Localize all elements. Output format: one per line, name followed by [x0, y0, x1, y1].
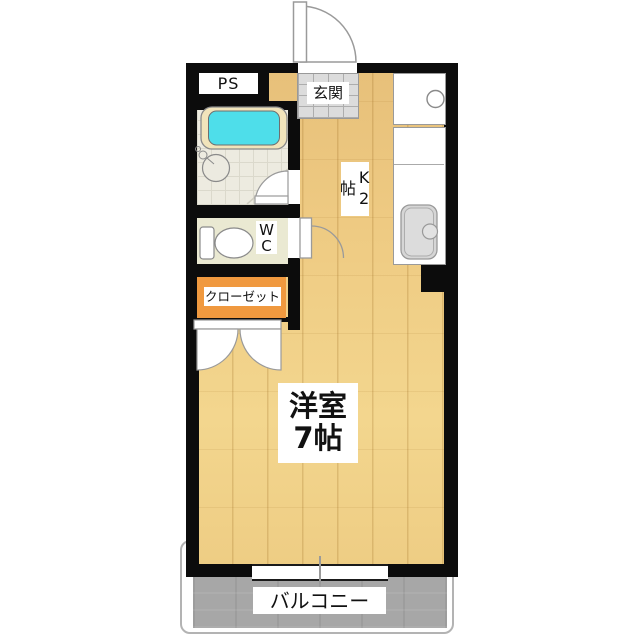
entrance-door-swing — [294, 2, 357, 62]
western-room-label-line1: 洋室 — [289, 391, 347, 423]
closet-label: クローゼット — [204, 287, 281, 306]
wc-door-leaf — [300, 218, 312, 258]
kitchen-label: K2帖 — [341, 162, 369, 216]
sink-drain-icon — [423, 224, 438, 239]
wc-label: WC — [256, 221, 277, 254]
entrance-door-leaf — [294, 2, 307, 62]
western-room-label-line2: 7帖 — [289, 423, 347, 455]
western-room-label: 洋室 7帖 — [278, 383, 358, 463]
wc-door-swing — [300, 218, 344, 258]
bathroom-door-leaf — [255, 196, 288, 204]
kitchen-sink — [401, 205, 438, 259]
entrance-label: 玄関 — [307, 82, 349, 104]
floor-plan: PS 玄関 K2帖 WC クローゼット 洋室 7帖 バルコニー — [0, 0, 640, 639]
closet-door-swings — [194, 320, 281, 370]
faucet-icon — [199, 151, 207, 159]
toilet — [200, 227, 253, 259]
stove-burner-icon — [427, 91, 444, 108]
bathroom-door-swing — [255, 171, 288, 204]
bathroom-sink — [196, 147, 230, 182]
ps-label: PS — [199, 73, 258, 94]
bathtub — [201, 107, 287, 149]
balcony-label: バルコニー — [253, 587, 386, 614]
closet-door-leaves — [194, 320, 281, 329]
